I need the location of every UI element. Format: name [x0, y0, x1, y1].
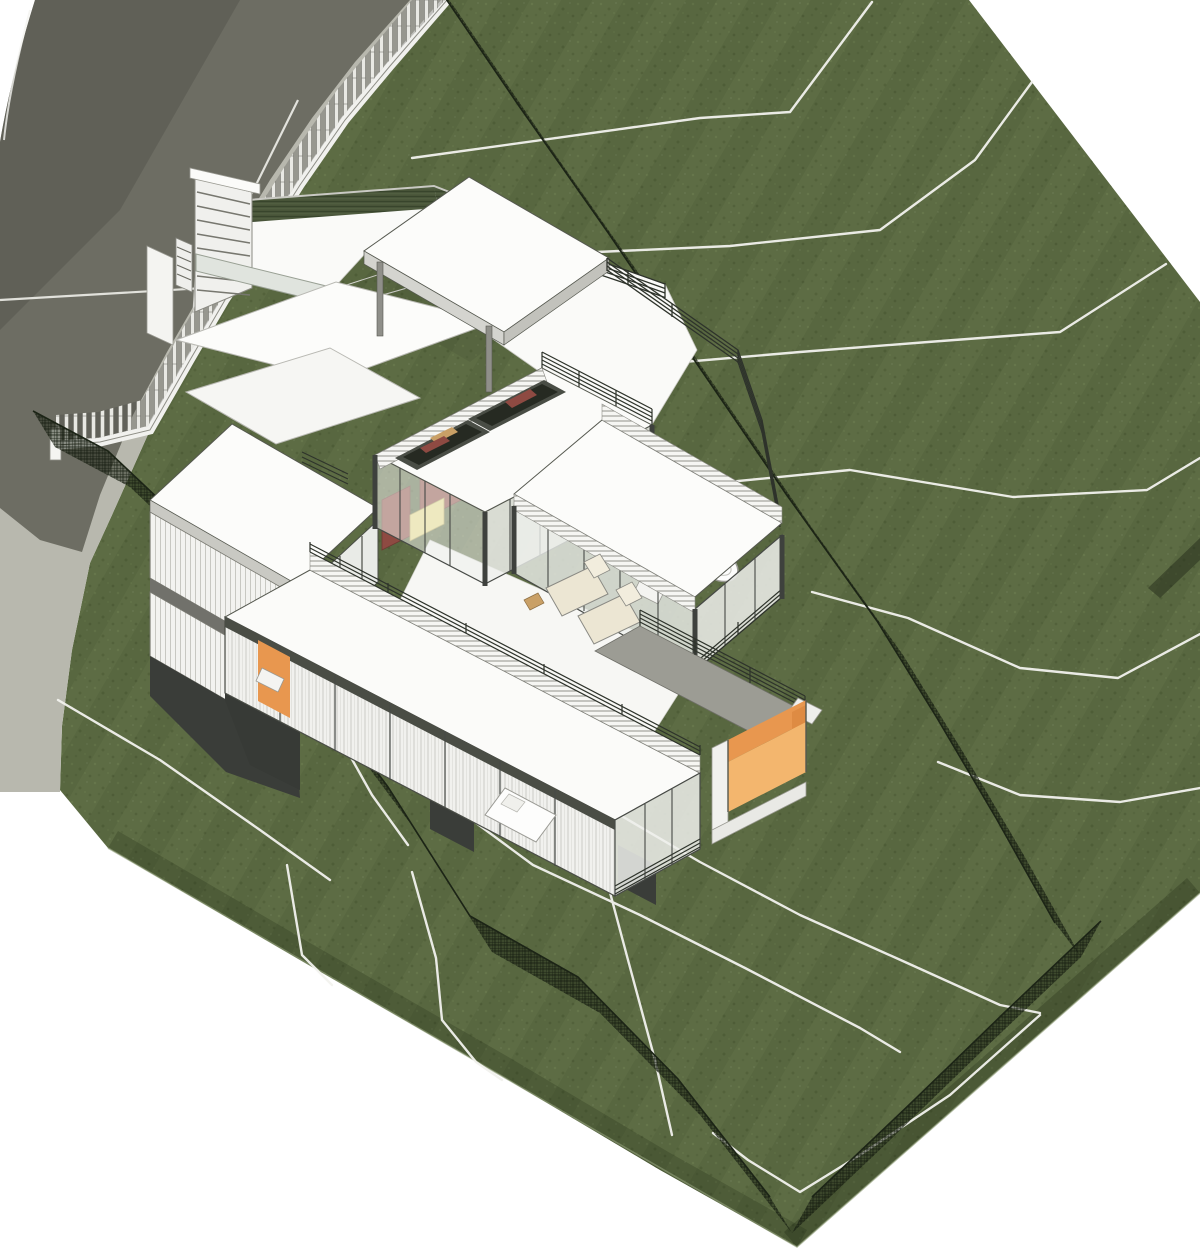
- carport-post: [486, 326, 492, 392]
- axonometric-scene: [0, 0, 1200, 1257]
- gate-side-door: [176, 238, 192, 292]
- gate-wall-post: [147, 246, 173, 345]
- site-plan-render: Aerial axonometric render of a split-lev…: [0, 0, 1200, 1257]
- gate-louvered-panel: [195, 178, 252, 312]
- carport-post: [377, 262, 383, 336]
